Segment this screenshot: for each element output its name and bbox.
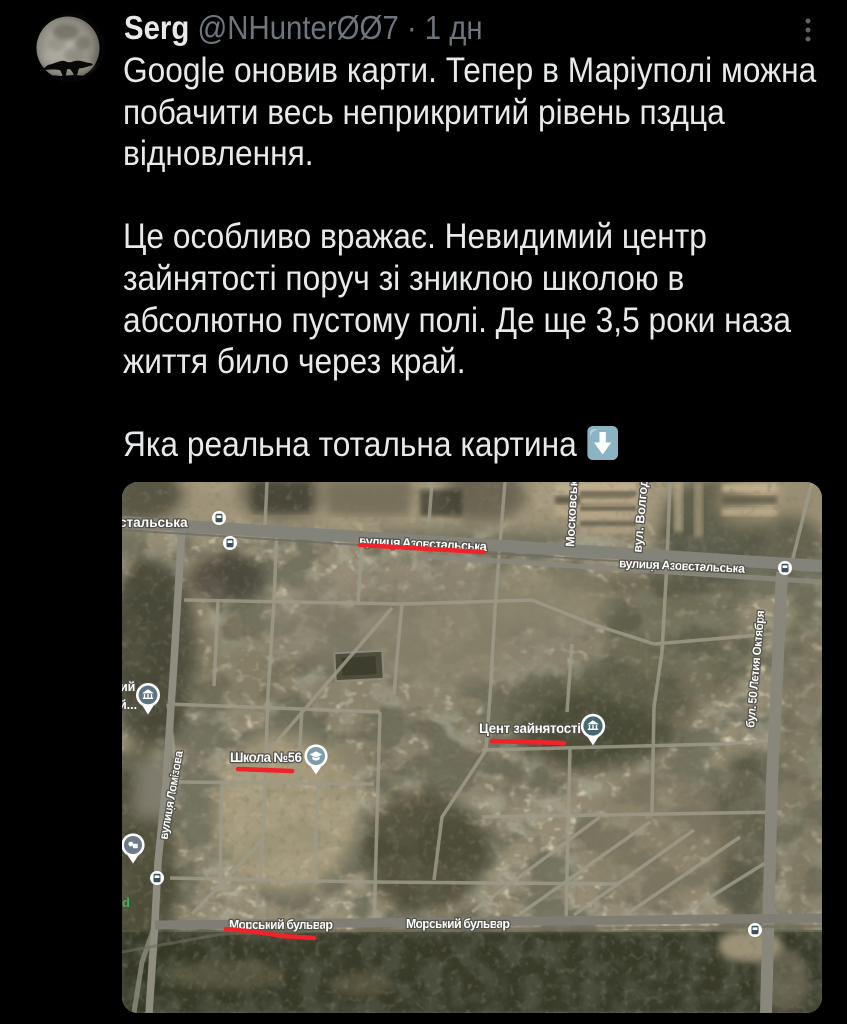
- svg-text:стальська: стальська: [122, 515, 188, 530]
- svg-text:й...: й...: [122, 698, 137, 712]
- svg-text:Цент зайнятості: Цент зайнятості: [479, 721, 581, 736]
- svg-text:d: d: [122, 895, 130, 910]
- svg-text:ий: ий: [122, 680, 135, 694]
- svg-text:Школа №56: Школа №56: [230, 750, 302, 765]
- svg-text:Морський бульвар: Морський бульвар: [406, 917, 510, 931]
